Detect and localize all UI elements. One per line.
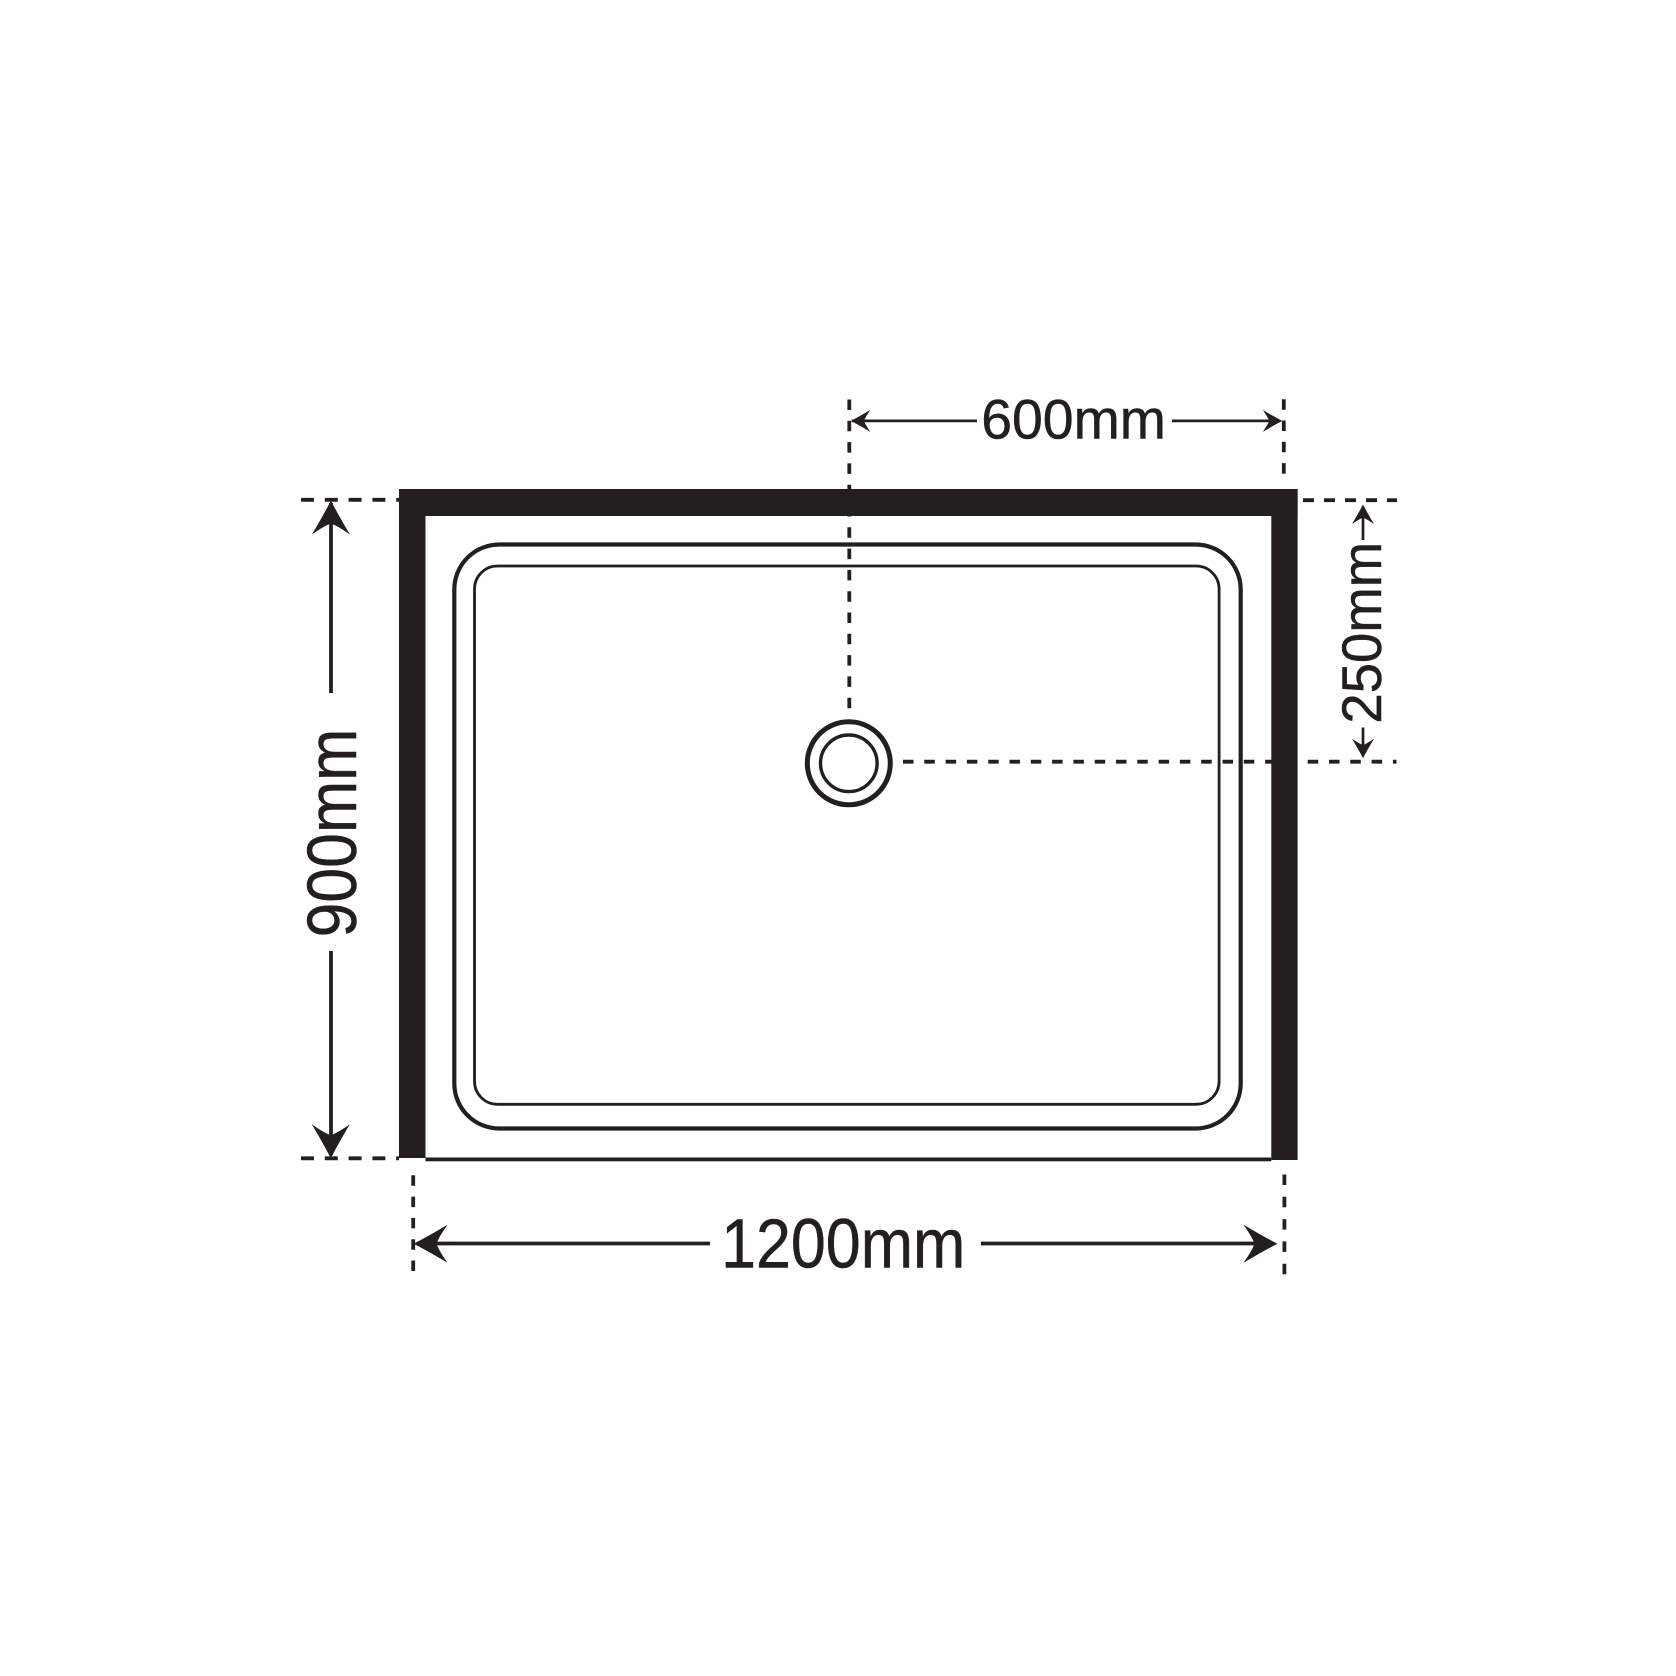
- svg-text:1200mm: 1200mm: [721, 1204, 965, 1282]
- svg-text:600mm: 600mm: [981, 389, 1166, 451]
- svg-text:900mm: 900mm: [293, 729, 371, 938]
- svg-text:250mm: 250mm: [1331, 542, 1393, 724]
